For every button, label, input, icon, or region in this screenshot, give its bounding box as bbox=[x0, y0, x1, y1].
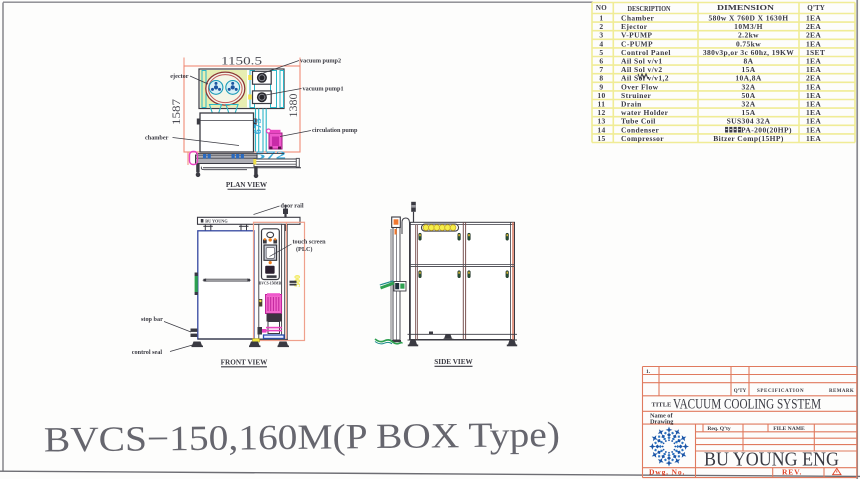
svg-text:REMARK: REMARK bbox=[829, 389, 854, 394]
svg-text:SPECIFICATION: SPECIFICATION bbox=[757, 389, 804, 394]
svg-text:BVCS−150,160M(P BOX Type): BVCS−150,160M(P BOX Type) bbox=[44, 414, 560, 459]
svg-text:BVCS-150MB: BVCS-150MB bbox=[259, 281, 282, 285]
svg-text:FILE NAME: FILE NAME bbox=[773, 426, 805, 432]
svg-text:vacuum pump1: vacuum pump1 bbox=[303, 86, 344, 93]
svg-text:Q’TY: Q’TY bbox=[807, 4, 825, 12]
svg-text:control seal: control seal bbox=[132, 349, 163, 356]
svg-text:TITLE: TITLE bbox=[652, 401, 672, 408]
svg-text:Compressor: Compressor bbox=[621, 134, 664, 143]
svg-text:BU YOUNG ENG: BU YOUNG ENG bbox=[704, 448, 839, 470]
svg-text:1EA: 1EA bbox=[806, 134, 821, 143]
svg-text:BU YOUNG: BU YOUNG bbox=[205, 219, 228, 224]
svg-text:SIDE VIEW: SIDE VIEW bbox=[434, 358, 473, 366]
svg-text:(PLC): (PLC) bbox=[296, 246, 313, 253]
svg-text:1.: 1. bbox=[646, 369, 651, 375]
svg-text:DIMENSION: DIMENSION bbox=[717, 5, 774, 12]
svg-text:vacuum pump2: vacuum pump2 bbox=[300, 58, 341, 65]
svg-text:touch screen: touch screen bbox=[293, 238, 327, 245]
svg-text:Drawing: Drawing bbox=[650, 419, 674, 426]
svg-text:1587: 1587 bbox=[169, 99, 183, 125]
svg-text:Dwg. No.: Dwg. No. bbox=[649, 468, 685, 477]
svg-text:15: 15 bbox=[597, 134, 605, 143]
svg-text:Req. Q’ty: Req. Q’ty bbox=[707, 426, 731, 432]
svg-text:DESCRIPTION: DESCRIPTION bbox=[628, 5, 672, 13]
svg-text:1150.5: 1150.5 bbox=[221, 56, 262, 68]
svg-text:ejector: ejector bbox=[170, 73, 188, 80]
svg-text:NO: NO bbox=[596, 4, 607, 12]
svg-text:stop bar: stop bar bbox=[141, 316, 163, 323]
svg-text:REV.: REV. bbox=[782, 468, 802, 477]
svg-text:Q’TY: Q’TY bbox=[734, 389, 747, 394]
svg-text:PLAN VIEW: PLAN VIEW bbox=[226, 181, 268, 189]
svg-text:Bitzer Comp(15HP): Bitzer Comp(15HP) bbox=[713, 134, 784, 143]
svg-text:circulation pump: circulation pump bbox=[312, 127, 358, 134]
svg-text:FRONT VIEW: FRONT VIEW bbox=[221, 358, 268, 366]
svg-text:chamber: chamber bbox=[145, 135, 169, 142]
svg-text:675: 675 bbox=[253, 118, 264, 135]
svg-text:VACUUM COOLING SYSTEM: VACUUM COOLING SYSTEM bbox=[673, 397, 821, 413]
svg-text:1380: 1380 bbox=[286, 94, 300, 118]
svg-text:door rail: door rail bbox=[281, 203, 304, 210]
